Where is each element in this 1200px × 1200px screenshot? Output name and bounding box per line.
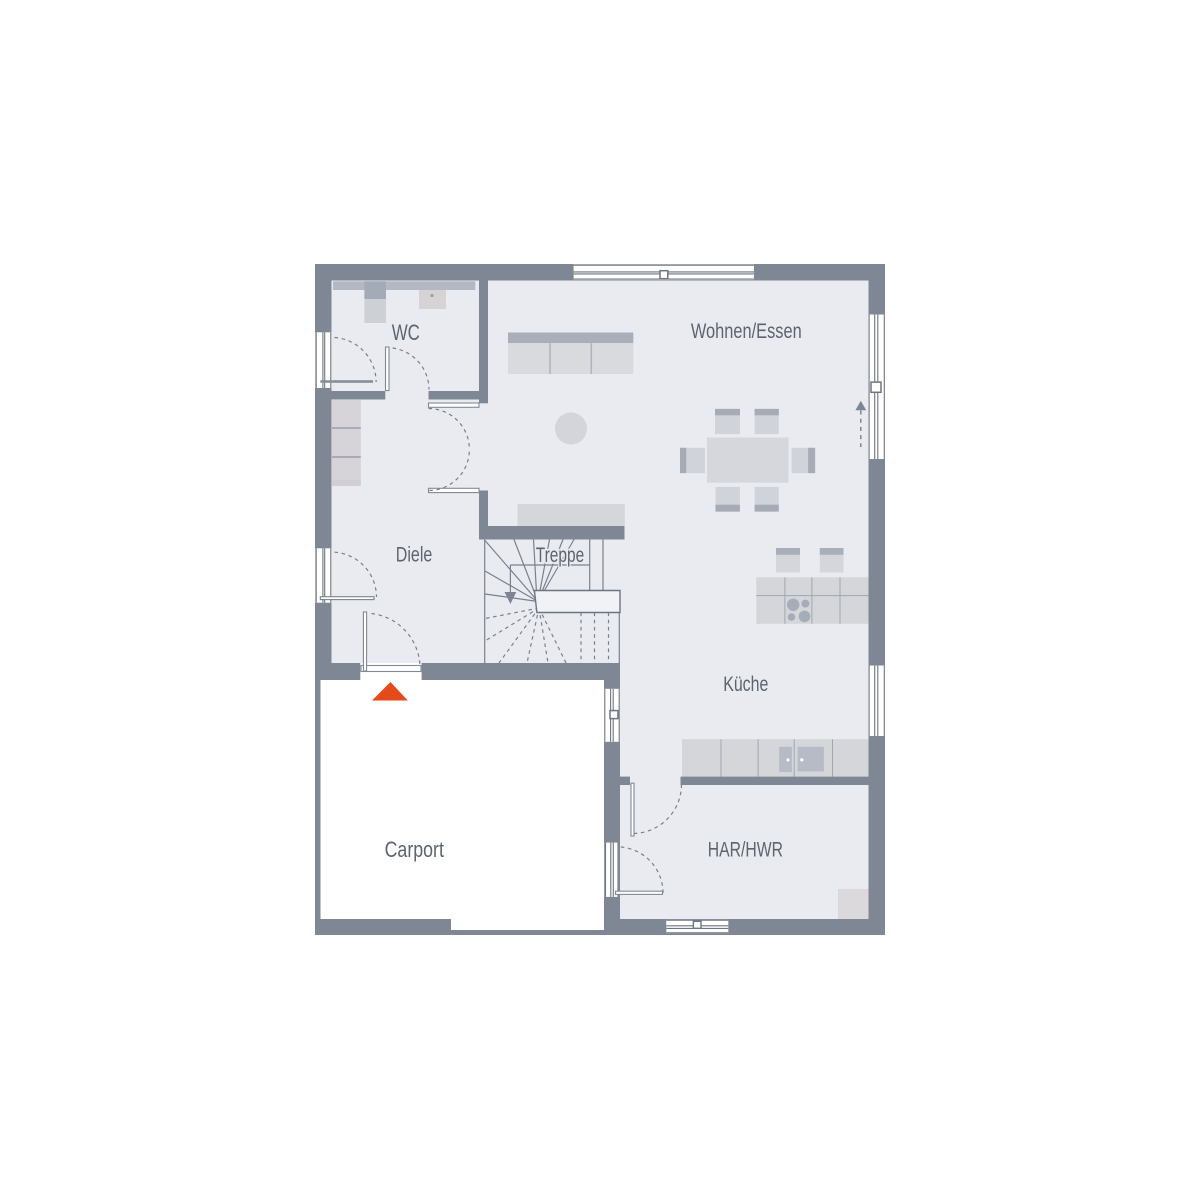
svg-text:Treppe: Treppe	[536, 543, 584, 567]
svg-text:Küche: Küche	[723, 672, 768, 696]
svg-text:WC: WC	[392, 320, 420, 345]
svg-text:Wohnen/Essen: Wohnen/Essen	[691, 319, 802, 343]
svg-text:HAR/HWR: HAR/HWR	[708, 838, 783, 862]
svg-text:Carport: Carport	[385, 837, 445, 862]
svg-text:Diele: Diele	[396, 543, 433, 567]
